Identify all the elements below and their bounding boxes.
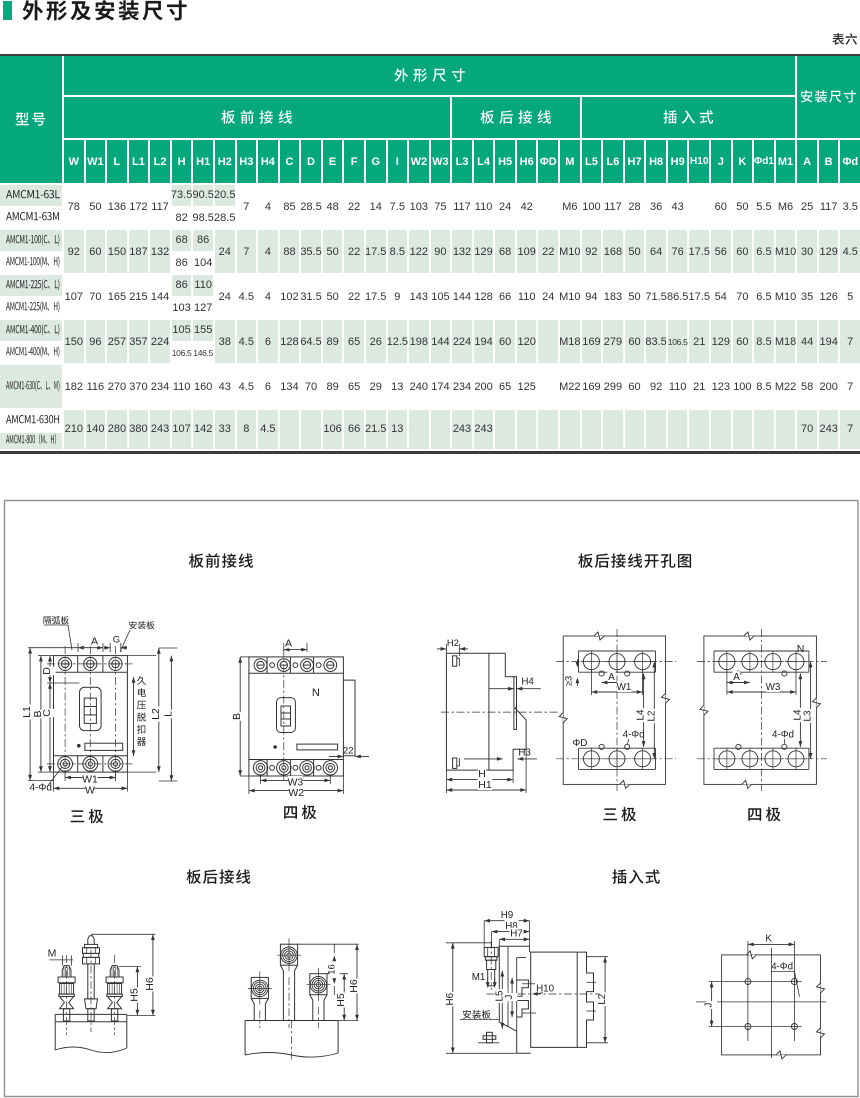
svg-text:A: A <box>733 672 740 683</box>
svg-text:A: A <box>285 638 292 650</box>
svg-text:H5: H5 <box>128 988 140 1002</box>
svg-text:M1: M1 <box>472 972 486 983</box>
svg-text:H6: H6 <box>445 992 456 1005</box>
svg-text:J: J <box>704 1002 715 1007</box>
svg-text:4-Φd: 4-Φd <box>772 730 794 741</box>
svg-text:H10: H10 <box>536 984 555 995</box>
svg-text:L2: L2 <box>646 711 657 722</box>
svg-text:A: A <box>608 672 615 683</box>
svg-text:D: D <box>41 667 53 675</box>
svg-text:W2: W2 <box>288 787 304 799</box>
svg-text:K: K <box>765 934 772 945</box>
svg-text:G: G <box>113 635 120 646</box>
svg-text:16: 16 <box>326 964 337 975</box>
svg-text:N: N <box>312 687 320 699</box>
svg-text:L2: L2 <box>597 994 608 1005</box>
svg-text:J: J <box>504 994 515 999</box>
svg-text:N: N <box>797 643 805 655</box>
svg-text:L2: L2 <box>150 708 162 720</box>
svg-text:L: L <box>162 711 174 717</box>
svg-text:C: C <box>41 709 53 717</box>
svg-text:H1: H1 <box>478 779 492 791</box>
svg-text:H6: H6 <box>144 977 156 991</box>
svg-text:4-Φd: 4-Φd <box>623 730 645 741</box>
svg-text:L4: L4 <box>636 709 647 720</box>
svg-text:L3: L3 <box>803 710 814 721</box>
svg-text:22: 22 <box>343 746 354 757</box>
svg-text:ΦD: ΦD <box>572 738 587 749</box>
svg-text:4-Φd: 4-Φd <box>771 961 793 972</box>
svg-text:W: W <box>85 785 95 797</box>
svg-text:W3: W3 <box>766 682 781 693</box>
svg-text:H5: H5 <box>335 993 347 1007</box>
svg-text:B: B <box>231 713 243 720</box>
svg-text:H4: H4 <box>521 677 534 688</box>
svg-text:H6: H6 <box>348 979 360 993</box>
svg-text:H9: H9 <box>501 910 514 921</box>
svg-text:M: M <box>48 948 57 960</box>
svg-text:H3: H3 <box>518 747 531 758</box>
svg-text:W1: W1 <box>617 682 632 693</box>
svg-text:≥3: ≥3 <box>564 676 574 686</box>
svg-text:H2: H2 <box>447 638 459 649</box>
svg-text:A: A <box>91 636 98 648</box>
svg-text:H7: H7 <box>510 929 523 940</box>
